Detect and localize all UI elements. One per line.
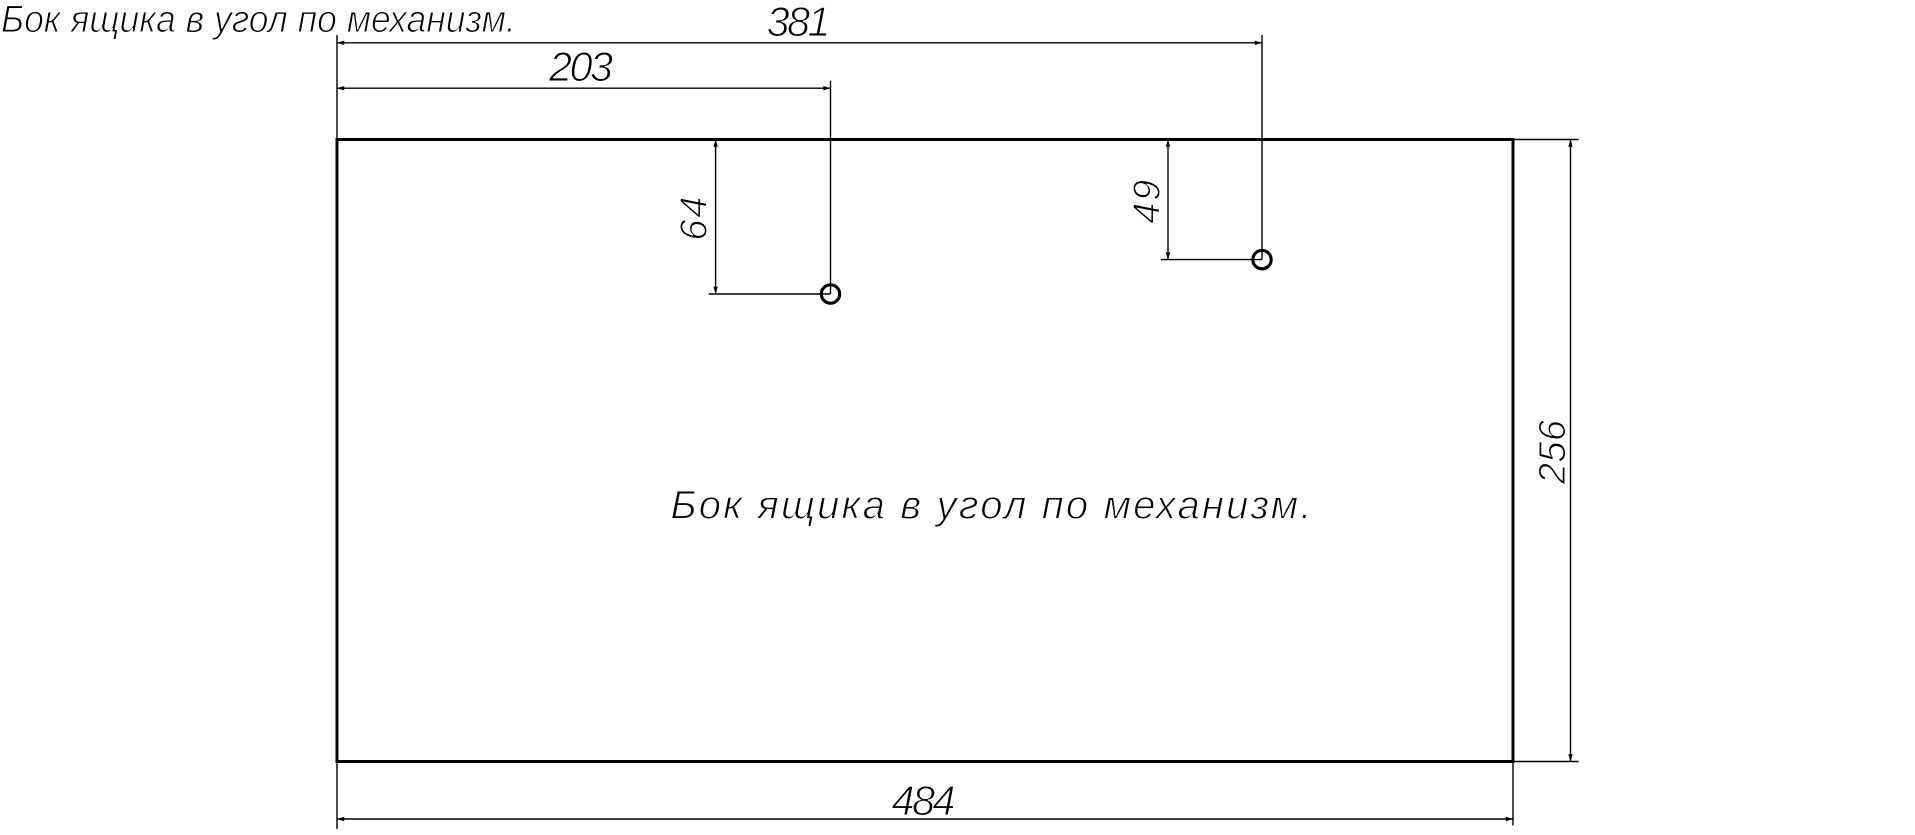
svg-text:49: 49 [1127, 180, 1169, 224]
svg-text:381: 381 [767, 0, 831, 45]
svg-text:256: 256 [1532, 419, 1574, 485]
svg-text:64: 64 [674, 197, 716, 241]
svg-text:Бок ящика в угол по механизм.: Бок ящика в угол по механизм. [671, 484, 1312, 528]
svg-text:484: 484 [892, 777, 956, 824]
svg-text:203: 203 [548, 43, 613, 90]
svg-text:Бок ящика в угол по механизм.: Бок ящика в угол по механизм. [1, 0, 516, 40]
